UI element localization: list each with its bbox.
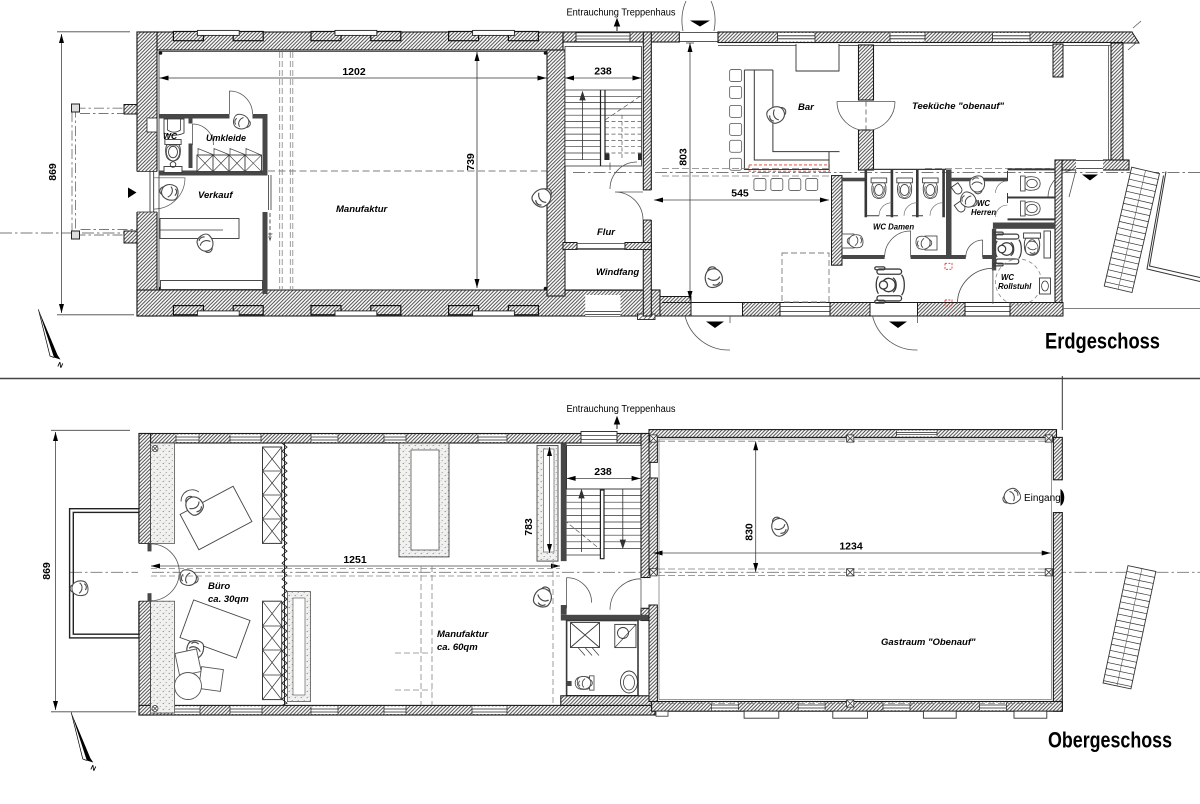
svg-text:WC: WC: [163, 131, 178, 141]
svg-text:WC Damen: WC Damen: [873, 223, 914, 232]
svg-text:830: 830: [744, 523, 756, 541]
svg-text:1202: 1202: [342, 66, 366, 78]
svg-text:WC: WC: [1001, 273, 1014, 282]
svg-text:238: 238: [594, 66, 612, 78]
svg-text:ca. 60qm: ca. 60qm: [437, 642, 478, 653]
svg-text:Manufaktur: Manufaktur: [437, 629, 490, 640]
svg-text:Flur: Flur: [597, 227, 616, 238]
svg-text:Bar: Bar: [798, 102, 815, 113]
svg-text:Manufaktur: Manufaktur: [336, 204, 389, 215]
svg-text:869: 869: [47, 163, 59, 181]
svg-text:Teeküche "obenauf": Teeküche "obenauf": [912, 101, 1005, 112]
svg-text:1251: 1251: [343, 554, 367, 566]
svg-text:Umkleide: Umkleide: [206, 133, 246, 143]
svg-text:Büro: Büro: [208, 581, 230, 592]
svg-text:Entrauchung Treppenhaus: Entrauchung Treppenhaus: [567, 8, 676, 19]
svg-text:ca. 30qm: ca. 30qm: [208, 594, 249, 605]
svg-text:Eingang: Eingang: [1024, 493, 1061, 504]
svg-text:238: 238: [594, 466, 612, 478]
svg-text:803: 803: [678, 148, 690, 166]
svg-text:Obergeschoss: Obergeschoss: [1048, 728, 1172, 753]
svg-text:Erdgeschoss: Erdgeschoss: [1045, 329, 1160, 354]
svg-text:739: 739: [465, 153, 477, 171]
svg-text:1234: 1234: [839, 541, 863, 553]
svg-text:Entrauchung Treppenhaus: Entrauchung Treppenhaus: [567, 404, 676, 415]
svg-text:545: 545: [731, 188, 749, 200]
svg-text:Gastraum "Obenauf": Gastraum "Obenauf": [881, 637, 976, 648]
svg-text:Windfang: Windfang: [596, 267, 639, 278]
svg-text:783: 783: [523, 518, 535, 536]
svg-text:Herren: Herren: [971, 208, 996, 217]
svg-text:Verkauf: Verkauf: [198, 190, 233, 201]
svg-text:869: 869: [41, 562, 53, 580]
svg-text:WC: WC: [977, 199, 990, 208]
svg-text:Rollstuhl: Rollstuhl: [998, 282, 1032, 291]
